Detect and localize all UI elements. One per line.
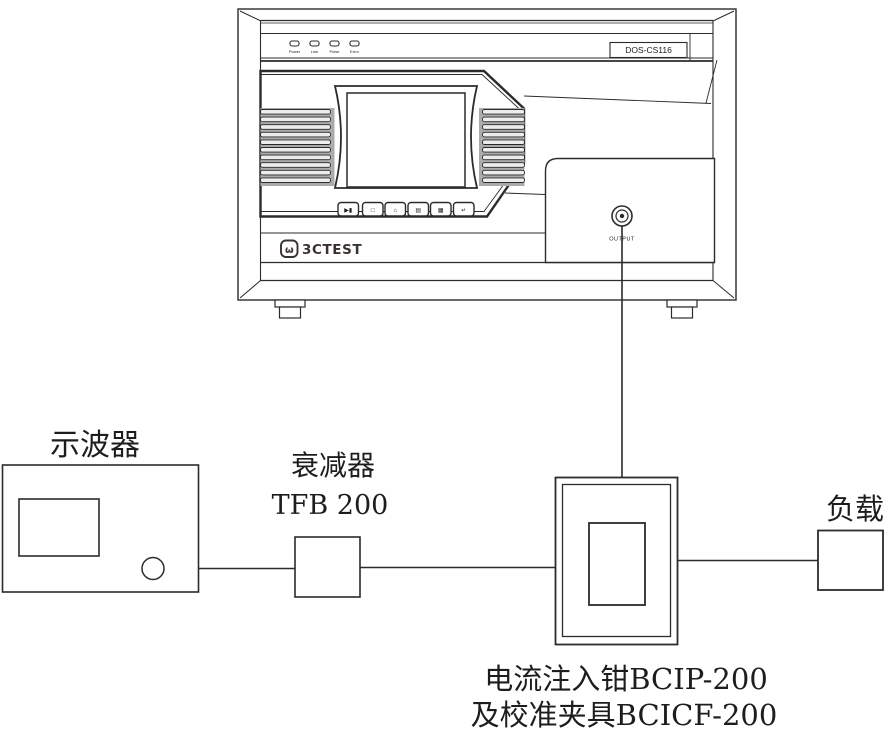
oscilloscope-label: 示波器 xyxy=(50,428,140,463)
signal-wires xyxy=(164,561,818,569)
brand-name: 3CTEST xyxy=(302,242,362,258)
clamp-label-line1: 电流注入钳BCIP-200 xyxy=(484,662,768,696)
heatsink-right xyxy=(479,108,525,186)
stop-icon: □ xyxy=(371,208,375,214)
home-button: ⌂ xyxy=(385,203,406,217)
load-box xyxy=(818,531,883,591)
display-screen xyxy=(335,86,477,188)
stop-button: □ xyxy=(363,203,384,217)
brand-logo-icon: ω xyxy=(285,245,294,256)
attenuator-label: 衰减器 xyxy=(291,449,375,482)
attenuator-model-label: TFB 200 xyxy=(272,490,389,521)
oscilloscope-screen xyxy=(19,499,99,556)
oscilloscope-box xyxy=(3,465,199,592)
chassis-feet xyxy=(275,300,697,318)
attenuator-box xyxy=(295,537,360,597)
model-badge: DOS-CS116 xyxy=(610,43,687,58)
led-pulse-label: Pulse xyxy=(329,49,340,54)
play-pause-button: ▶▮ xyxy=(338,203,359,217)
led-line-label: Line xyxy=(311,49,319,54)
led-power-label: Power xyxy=(289,49,301,54)
front-buttons: ▶▮ □ ⌂ ▤ ▦ ↵ xyxy=(338,203,474,217)
menu-button: ▤ xyxy=(408,203,429,217)
play-pause-icon: ▶▮ xyxy=(344,208,352,214)
enter-button: ↵ xyxy=(454,203,475,217)
enter-icon: ↵ xyxy=(461,208,466,214)
oscilloscope-connector-icon xyxy=(142,558,164,580)
output-label: OUTPUT xyxy=(609,237,635,243)
menu-icon: ▤ xyxy=(415,208,421,214)
keypad-icon: ▦ xyxy=(438,208,444,214)
load-label: 负载 xyxy=(826,492,884,526)
clamp-label-line2: 及校准夹具BCICF-200 xyxy=(471,698,778,732)
model-label: DOS-CS116 xyxy=(625,45,672,55)
keypad-button: ▦ xyxy=(431,203,452,217)
clamp-window xyxy=(589,523,645,605)
home-icon: ⌂ xyxy=(393,208,397,214)
test-setup-diagram: Power Line Pulse Error DOS-CS116 xyxy=(0,0,888,736)
heatsink-left xyxy=(261,108,335,186)
injection-clamp-box xyxy=(556,478,678,645)
led-error-label: Error xyxy=(350,49,360,54)
